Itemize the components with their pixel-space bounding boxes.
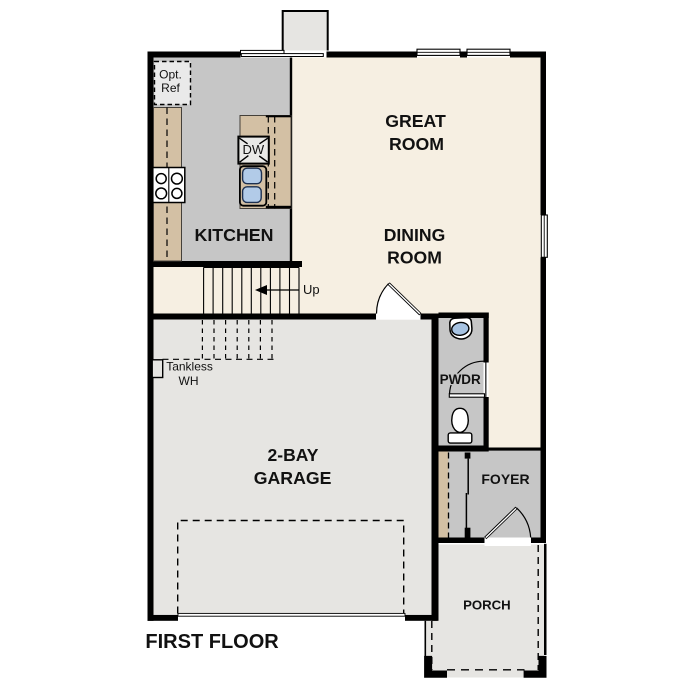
svg-text:DINING: DINING: [384, 225, 446, 245]
svg-text:PORCH: PORCH: [463, 598, 511, 613]
svg-text:GARAGE: GARAGE: [254, 468, 332, 488]
svg-text:KITCHEN: KITCHEN: [194, 225, 273, 245]
svg-text:WH: WH: [179, 374, 199, 388]
svg-text:GREAT: GREAT: [385, 111, 446, 131]
svg-text:FIRST FLOOR: FIRST FLOOR: [145, 631, 279, 653]
svg-text:2-BAY: 2-BAY: [268, 445, 319, 465]
svg-text:Opt.: Opt.: [159, 68, 182, 82]
svg-text:Up: Up: [303, 282, 320, 297]
svg-text:DW: DW: [242, 142, 264, 157]
svg-text:PWDR: PWDR: [440, 372, 481, 387]
svg-text:FOYER: FOYER: [481, 471, 529, 487]
svg-text:Ref: Ref: [161, 81, 180, 95]
svg-text:ROOM: ROOM: [389, 134, 444, 154]
svg-text:Tankless: Tankless: [166, 360, 213, 374]
svg-text:ROOM: ROOM: [387, 247, 442, 267]
